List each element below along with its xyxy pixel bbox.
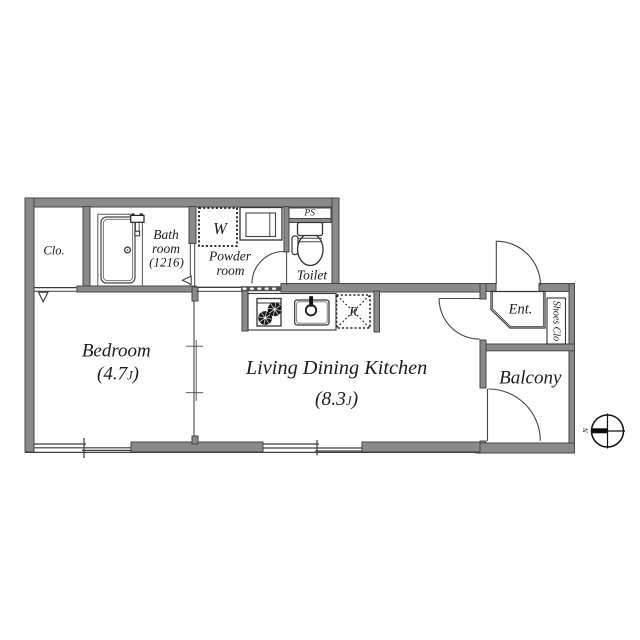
- svg-text:(1216): (1216): [149, 255, 184, 270]
- svg-text:Bedroom: Bedroom: [82, 341, 151, 362]
- svg-text:Living Dining Kitchen: Living Dining Kitchen: [245, 357, 427, 379]
- svg-text:R: R: [348, 304, 357, 319]
- svg-text:Bath: Bath: [153, 227, 179, 242]
- svg-text:Clo.: Clo.: [43, 244, 64, 258]
- svg-text:Shoes Clo: Shoes Clo: [551, 301, 562, 341]
- svg-text:Powder: Powder: [208, 249, 252, 264]
- svg-text:Ent.: Ent.: [508, 302, 533, 318]
- svg-text:room: room: [216, 263, 244, 278]
- svg-text:Balcony: Balcony: [499, 368, 562, 389]
- svg-text:(4.7J): (4.7J): [97, 363, 139, 384]
- svg-text:PS: PS: [303, 209, 315, 219]
- svg-text:N: N: [581, 427, 590, 434]
- svg-text:Toilet: Toilet: [297, 268, 329, 283]
- svg-text:(8.3J): (8.3J): [315, 389, 358, 410]
- svg-text:W: W: [213, 219, 228, 238]
